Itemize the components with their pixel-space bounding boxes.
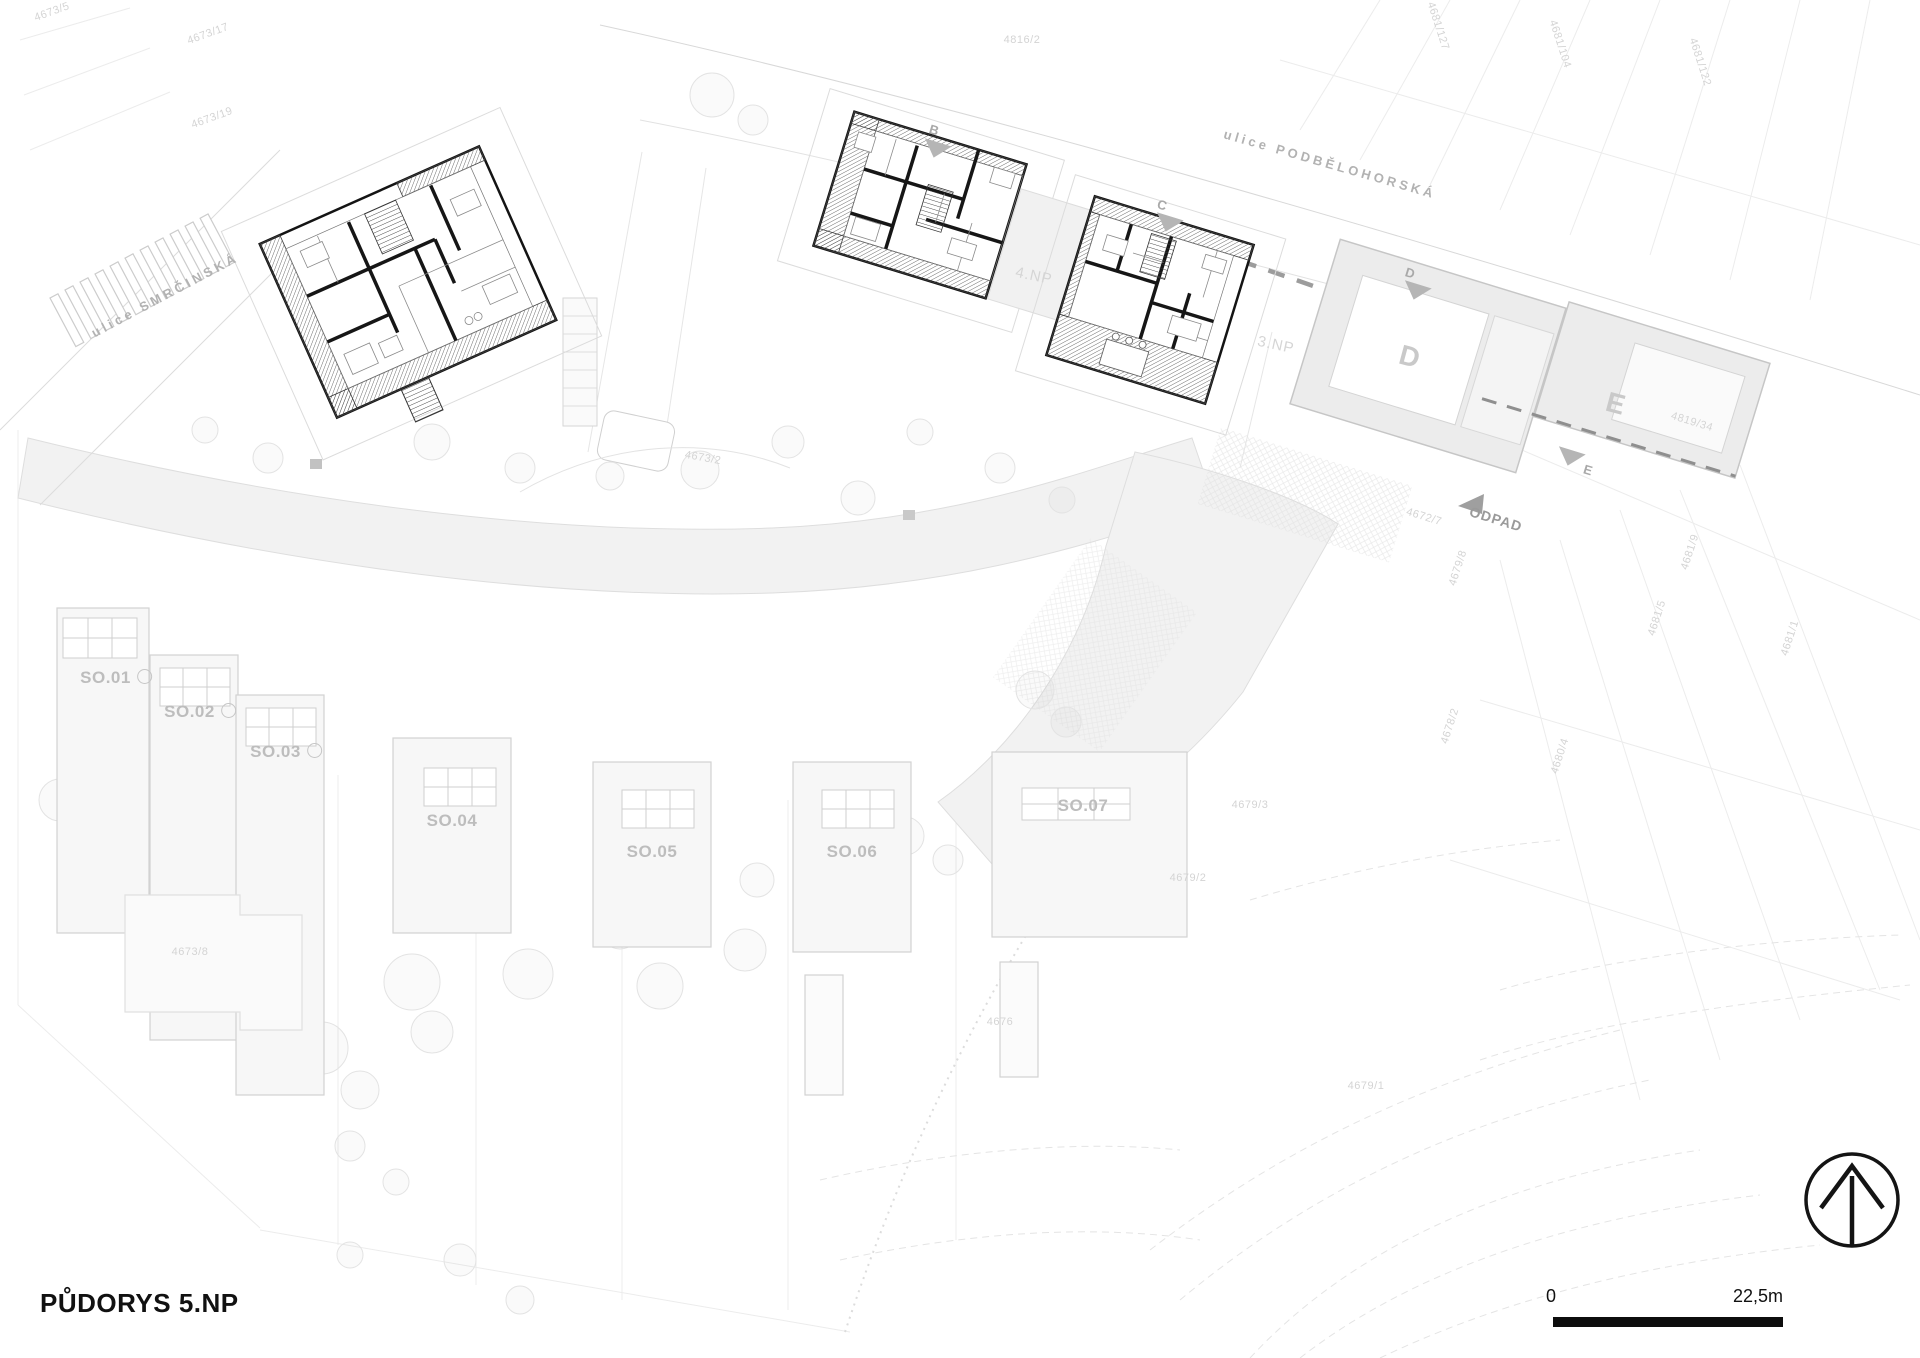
villa-marker-circle: [137, 669, 152, 684]
page-title: PŮDORYS 5.NP: [40, 1288, 239, 1319]
villa-label-text: SO.04: [427, 811, 478, 830]
parcel-number: 4679/2: [1170, 872, 1207, 884]
villa-label-so05: SO.05: [627, 842, 678, 862]
parcel-number: 4679/3: [1232, 799, 1269, 811]
driveway-ramp: [563, 298, 597, 426]
existing-house-outline: [125, 895, 302, 1030]
scale-zero-label: 0: [1546, 1286, 1556, 1307]
pool-so06: [805, 975, 843, 1095]
villa-label-text: SO.07: [1058, 796, 1109, 815]
villa-marker-circle: [307, 743, 322, 758]
villa-label-text: SO.06: [827, 842, 878, 861]
north-arrow-icon: [1806, 1154, 1898, 1246]
building-d: [1290, 239, 1566, 472]
villa-label-so06: SO.06: [827, 842, 878, 862]
villa-label-text: SO.01: [80, 668, 131, 687]
parcel-number: 4816/2: [1004, 34, 1041, 46]
villa-label-so07: SO.07: [1058, 796, 1109, 816]
villa-label-so01: SO.01: [80, 668, 152, 688]
site-plan-drawing: [0, 0, 1920, 1358]
parcel-number: 4676: [987, 1016, 1013, 1028]
villa-so07: [992, 752, 1187, 937]
parcel-number: 4673/8: [172, 946, 209, 958]
villa-label-text: SO.03: [250, 742, 301, 761]
villa-so04: [393, 738, 511, 933]
building-b-floorplan: [777, 89, 1109, 347]
villa-label-text: SO.02: [164, 702, 215, 721]
building-a-floorplan: [221, 108, 603, 463]
parcel-number: 4679/1: [1348, 1080, 1385, 1092]
villa-marker-circle: [221, 703, 236, 718]
scale-max-label: 22,5m: [1733, 1286, 1783, 1307]
utility-box-2: [903, 510, 915, 520]
villa-label-text: SO.05: [627, 842, 678, 861]
site-plan-canvas: PŮDORYS 5.NP 0 22,5m ulice SMRČINSKÁ uli…: [0, 0, 1920, 1358]
villa-label-so02: SO.02: [164, 702, 236, 722]
utility-box-1: [310, 459, 322, 469]
villa-label-so04: SO.04: [427, 811, 478, 831]
contour-lines-layer: [820, 840, 1910, 1358]
scale-bar: [1553, 1317, 1783, 1327]
villa-label-so03: SO.03: [250, 742, 322, 762]
